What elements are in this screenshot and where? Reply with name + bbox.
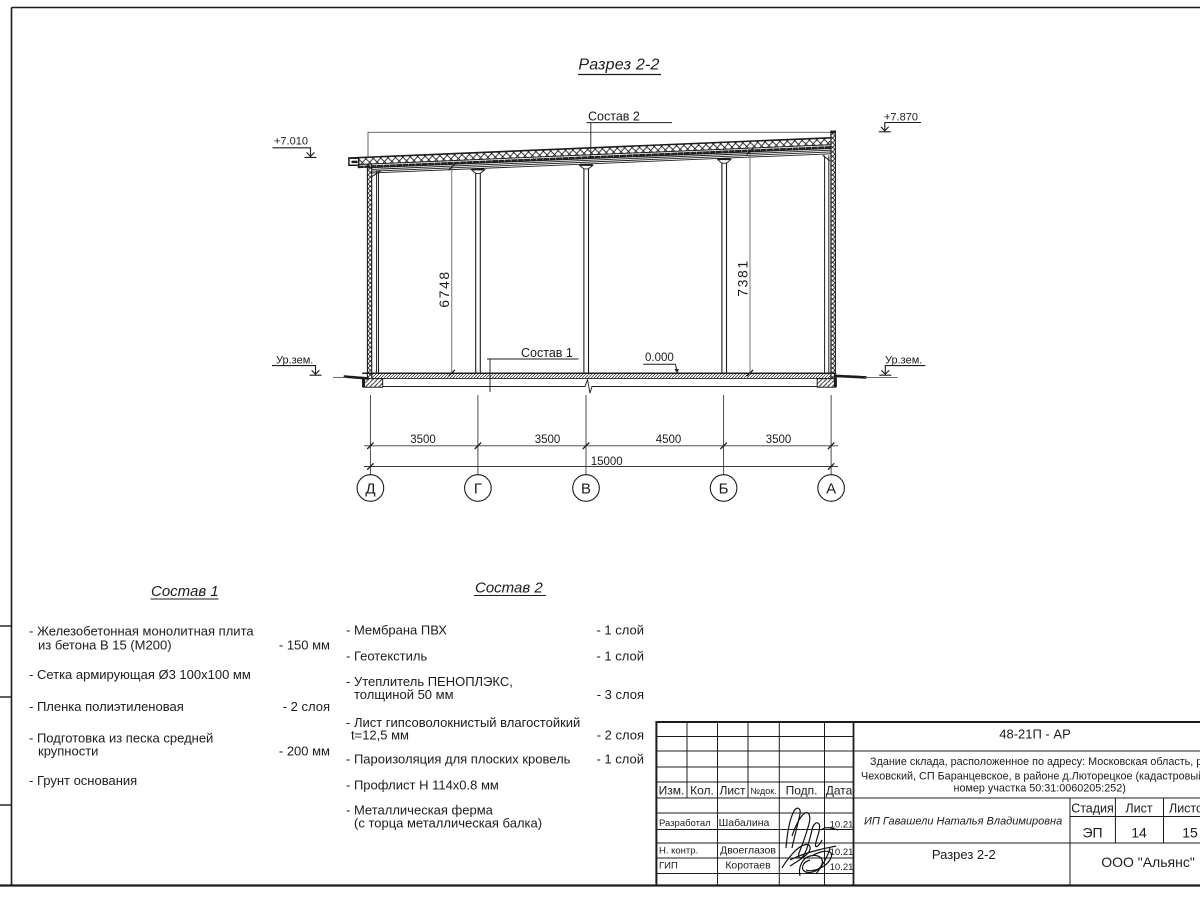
svg-text:- 2 слоя: - 2 слоя xyxy=(283,699,330,714)
svg-text:- 2 слоя: - 2 слоя xyxy=(597,728,644,743)
svg-text:Кол.: Кол. xyxy=(690,784,714,798)
svg-text:Д: Д xyxy=(365,480,375,497)
svg-text:Лист: Лист xyxy=(1125,802,1152,816)
svg-text:7381: 7381 xyxy=(735,259,751,297)
svg-text:10.21: 10.21 xyxy=(830,847,854,858)
svg-text:Стадия: Стадия xyxy=(1071,802,1114,816)
svg-text:Б: Б xyxy=(719,480,729,497)
svg-text:Ур.зем.: Ур.зем. xyxy=(276,354,313,366)
svg-text:- 1 слой: - 1 слой xyxy=(596,752,644,767)
svg-text:Коротаев: Коротаев xyxy=(725,860,771,872)
svg-text:- 3 слоя: - 3 слоя xyxy=(597,687,644,702)
svg-text:Разрез 2-2: Разрез 2-2 xyxy=(932,847,996,862)
svg-text:ЭП: ЭП xyxy=(1082,825,1102,841)
svg-text:Листов: Листов xyxy=(1169,802,1200,816)
svg-text:48-21П - АР: 48-21П - АР xyxy=(999,727,1071,742)
svg-text:6748: 6748 xyxy=(436,270,452,308)
svg-text:ГИП: ГИП xyxy=(659,861,678,872)
svg-text:Чеховский, СП Баранцевское, в: Чеховский, СП Баранцевское, в районе д.Л… xyxy=(861,771,1200,783)
svg-text:Ур.зем.: Ур.зем. xyxy=(885,354,922,366)
svg-text:3500: 3500 xyxy=(410,434,436,446)
svg-text:15000: 15000 xyxy=(591,456,623,468)
svg-text:В: В xyxy=(581,480,591,497)
svg-text:Двоеглазов: Двоеглазов xyxy=(720,845,776,857)
svg-text:(с торца металлическая балка): (с торца металлическая балка) xyxy=(354,816,542,831)
svg-text:Подп.: Подп. xyxy=(786,784,818,798)
svg-text:номер участка 50:31:0060205:25: номер участка 50:31:0060205:252) xyxy=(954,783,1126,795)
svg-text:Изм.: Изм. xyxy=(659,784,685,798)
svg-text:+7.010: +7.010 xyxy=(274,136,308,148)
svg-text:Состав 1: Состав 1 xyxy=(151,583,219,600)
svg-text:- 1 слой: - 1 слой xyxy=(596,649,644,664)
svg-text:Разрез 2-2: Разрез 2-2 xyxy=(578,57,659,74)
svg-text:- Мембрана ПВХ: - Мембрана ПВХ xyxy=(346,623,447,638)
svg-text:А: А xyxy=(826,480,836,497)
svg-text:t=12,5 мм: t=12,5 мм xyxy=(351,728,409,743)
svg-text:- Пленка полиэтиленовая: - Пленка полиэтиленовая xyxy=(29,699,184,714)
svg-text:ООО "Альянс": ООО "Альянс" xyxy=(1101,854,1195,870)
svg-text:- Геотекстиль: - Геотекстиль xyxy=(346,649,427,664)
svg-text:из бетона В 15 (М200): из бетона В 15 (М200) xyxy=(38,638,172,653)
svg-text:- 200 мм: - 200 мм xyxy=(279,744,330,759)
svg-text:+7.870: +7.870 xyxy=(884,111,918,123)
svg-text:14: 14 xyxy=(1131,825,1147,841)
svg-text:- 1 слой: - 1 слой xyxy=(596,623,644,638)
svg-text:№док.: №док. xyxy=(750,786,776,796)
svg-text:Н. контр.: Н. контр. xyxy=(659,846,698,857)
svg-text:Состав 1: Состав 1 xyxy=(521,346,573,360)
svg-text:- Железобетонная монолитная п: - Железобетонная монолитная плита xyxy=(29,624,254,639)
svg-text:- Пароизоляция для плоских кро: - Пароизоляция для плоских кровель xyxy=(346,752,571,767)
svg-text:ИП Гавашели Наталья Владимиров: ИП Гавашели Наталья Владимировна xyxy=(864,816,1062,828)
svg-text:3500: 3500 xyxy=(766,434,792,446)
svg-text:Состав 2: Состав 2 xyxy=(475,580,543,597)
svg-text:Здание склада, расположенное п: Здание склада, расположенное по адресу: … xyxy=(870,756,1200,768)
svg-text:3500: 3500 xyxy=(535,434,561,446)
svg-text:толщиной 50 мм: толщиной 50 мм xyxy=(354,687,454,702)
svg-text:0.000: 0.000 xyxy=(645,352,674,364)
svg-text:- Профлист Н 114х0.8 мм: - Профлист Н 114х0.8 мм xyxy=(346,778,499,793)
svg-text:- 150 мм: - 150 мм xyxy=(279,638,330,653)
svg-text:10.21: 10.21 xyxy=(830,862,854,873)
svg-text:Шабалина: Шабалина xyxy=(719,817,770,829)
svg-text:Лист: Лист xyxy=(719,784,746,798)
svg-text:- Сетка армирующая Ø3 100х100: - Сетка армирующая Ø3 100х100 мм xyxy=(29,667,251,682)
svg-text:Г: Г xyxy=(474,480,482,497)
svg-text:Состав 2: Состав 2 xyxy=(588,110,640,124)
svg-text:- Грунт основания: - Грунт основания xyxy=(29,773,137,788)
svg-text:4500: 4500 xyxy=(656,434,682,446)
svg-text:крупности: крупности xyxy=(38,744,98,759)
svg-text:15: 15 xyxy=(1182,825,1198,841)
svg-text:Разработал: Разработал xyxy=(659,818,711,829)
svg-text:Дата: Дата xyxy=(826,784,853,798)
